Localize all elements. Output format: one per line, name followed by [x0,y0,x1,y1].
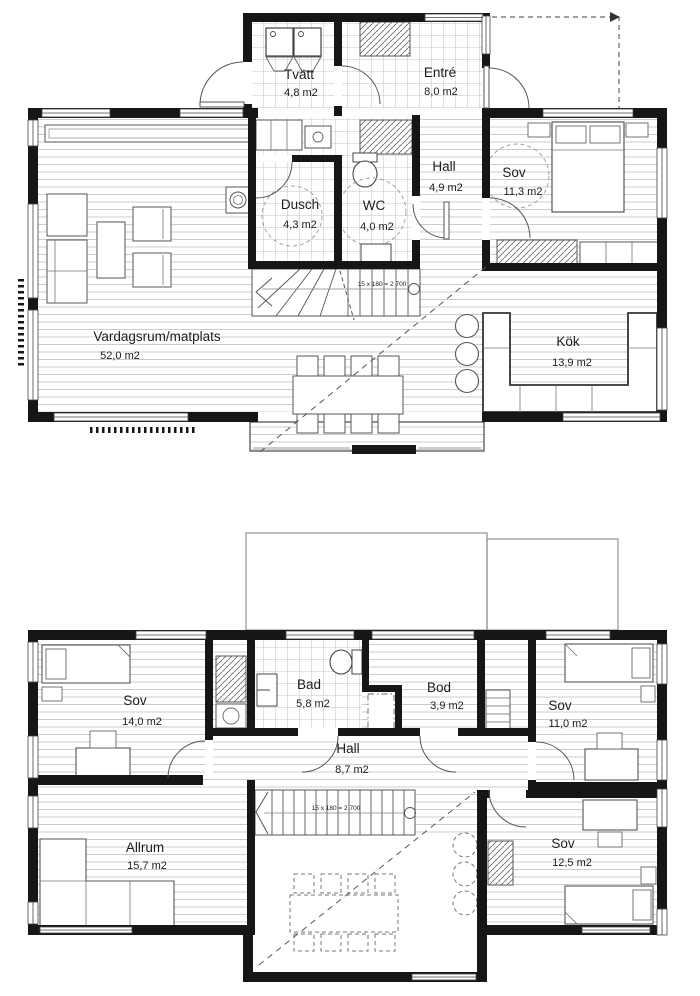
room-area-bod: 3,9 m2 [430,700,464,712]
attic-ladder [486,690,510,730]
bar-stools [456,315,479,393]
room-area-kok: 13,9 m2 [552,357,592,369]
floorplan-sheet: Tvätt 4,8 m2 Entré 8,0 m2 Dusch 4,3 m2 W… [0,0,700,996]
room-label-entre: Entré [424,65,456,80]
room-label-allrum: Allrum [126,840,164,855]
wall-shelf [45,125,253,142]
room-area-allrum: 15,7 m2 [127,860,167,872]
room-label-sov11: Sov [548,698,572,713]
fireplace-stove-icon [226,187,250,213]
room-area-sov11: 11,0 m2 [549,718,588,730]
bedroom-closets [497,240,658,265]
stairs-floor2 [255,790,416,835]
floor-plan-drawing: Tvätt 4,8 m2 Entré 8,0 m2 Dusch 4,3 m2 W… [0,0,700,996]
stair-note-floor1: 15 x 180 = 2 700 [358,281,407,288]
room-area-bad: 5,8 m2 [296,698,330,710]
room-label-vardagsrum: Vardagsrum/matplats [93,329,221,344]
room-label-tvatt: Tvätt [284,67,314,82]
room-area-sov125: 12,5 m2 [552,857,592,869]
entre-wardrobe [360,22,410,56]
room-label-kok: Kök [556,334,580,349]
room-area-vardagsrum: 52,0 m2 [100,350,140,362]
sofa [47,194,87,303]
room-area-sov14: 14,0 m2 [122,716,162,728]
coffee-table [97,222,125,278]
room-label-bad: Bad [297,677,321,692]
stair-note-floor2: 15 x 180 = 2 700 [312,805,361,812]
room-area-sov1: 11,3 m2 [504,186,543,198]
room-label-hall2: Hall [336,741,359,756]
canopy-dashed-outline [492,12,620,112]
room-area-entre: 8,0 m2 [424,86,458,98]
room-label-sov14: Sov [123,693,147,708]
room-label-wc: WC [363,198,386,213]
stairs-floor1 [252,264,420,320]
roof-outline [246,533,618,630]
room-area-tvatt: 4,8 m2 [284,87,318,99]
room-label-bod: Bod [427,680,451,695]
shaft-dashdot [368,694,394,732]
closet-column [216,656,246,728]
room-area-dusch: 4,3 m2 [283,219,317,231]
corridor-wardrobe [360,120,412,154]
second-floor-plan: Sov 14,0 m2 Bad 5,8 m2 Bod 3,9 m2 Sov 11… [28,533,667,982]
room-area-hall1: 4,9 m2 [429,182,463,194]
room-label-dusch: Dusch [281,197,319,212]
room-area-wc: 4,0 m2 [360,221,394,233]
room-area-hall2: 8,7 m2 [335,764,369,776]
room-label-sov1: Sov [502,165,526,180]
room-label-sov125: Sov [551,836,575,851]
room-label-hall1: Hall [432,159,455,174]
first-floor-plan: Tvätt 4,8 m2 Entré 8,0 m2 Dusch 4,3 m2 W… [21,12,667,454]
